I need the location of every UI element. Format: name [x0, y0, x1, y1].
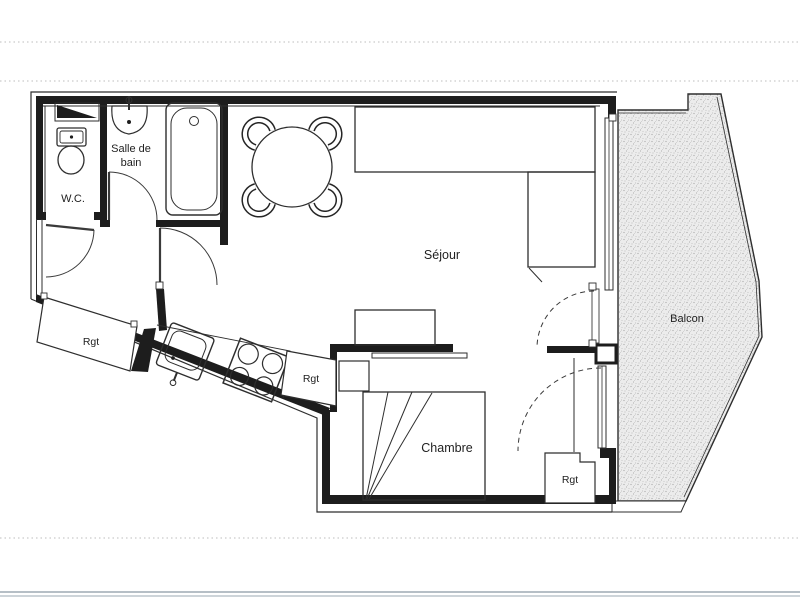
bedroom-balcony-door-swing	[518, 368, 601, 451]
wc-room-label: W.C.	[61, 193, 85, 205]
bedroom-room: Rgt Chambre	[339, 358, 595, 503]
wall-pillar-block	[596, 345, 616, 363]
living-room: Séjour	[245, 107, 595, 358]
bedroom-label: Chambre	[421, 441, 472, 455]
balcony-label: Balcon	[670, 313, 704, 325]
storage-hall-closet: Rgt	[37, 293, 137, 371]
page-bottom-rule	[0, 592, 800, 596]
storage-bedroom-closet: Rgt	[545, 453, 595, 503]
floor-plan: W.C. Salle de bain	[0, 0, 800, 600]
storage-hall-label: Rgt	[83, 336, 99, 348]
dining-table-icon	[252, 127, 332, 207]
bathroom-room: Salle de bain	[111, 96, 222, 215]
wc-room: W.C.	[55, 103, 99, 205]
living-balcony-bay-window	[605, 118, 613, 290]
technical-shaft-icon	[57, 105, 97, 118]
wc-door	[46, 225, 94, 277]
bedroom-door	[537, 289, 599, 348]
storage-bedroom-label: Rgt	[562, 474, 578, 486]
wall-inner-lines	[37, 106, 601, 296]
toilet-icon	[57, 128, 86, 174]
shelf-icon	[372, 353, 467, 358]
desk-icon	[355, 310, 435, 345]
kitchenette: Rgt Rgt	[37, 293, 336, 406]
bedroom-balcony-bay-window	[598, 366, 606, 448]
balcony-area	[612, 94, 762, 512]
bathroom-label-line1: Salle de	[111, 143, 151, 155]
bathroom-door	[109, 172, 157, 220]
nightstand-icon	[339, 361, 369, 391]
dining-chairs-icons	[245, 120, 339, 214]
storage-kitchen-label: Rgt	[303, 373, 319, 385]
bathtub-icon	[166, 103, 222, 215]
bathroom-label-line2: bain	[121, 157, 142, 169]
living-room-label: Séjour	[424, 248, 460, 262]
wall-unit-icon	[528, 172, 595, 282]
sofa-icon	[355, 107, 595, 172]
interior-walls	[100, 100, 596, 412]
hall-door	[160, 228, 217, 285]
balcony-step-edge	[612, 501, 686, 512]
scanned-floor-plan-page: W.C. Salle de bain	[0, 0, 800, 600]
